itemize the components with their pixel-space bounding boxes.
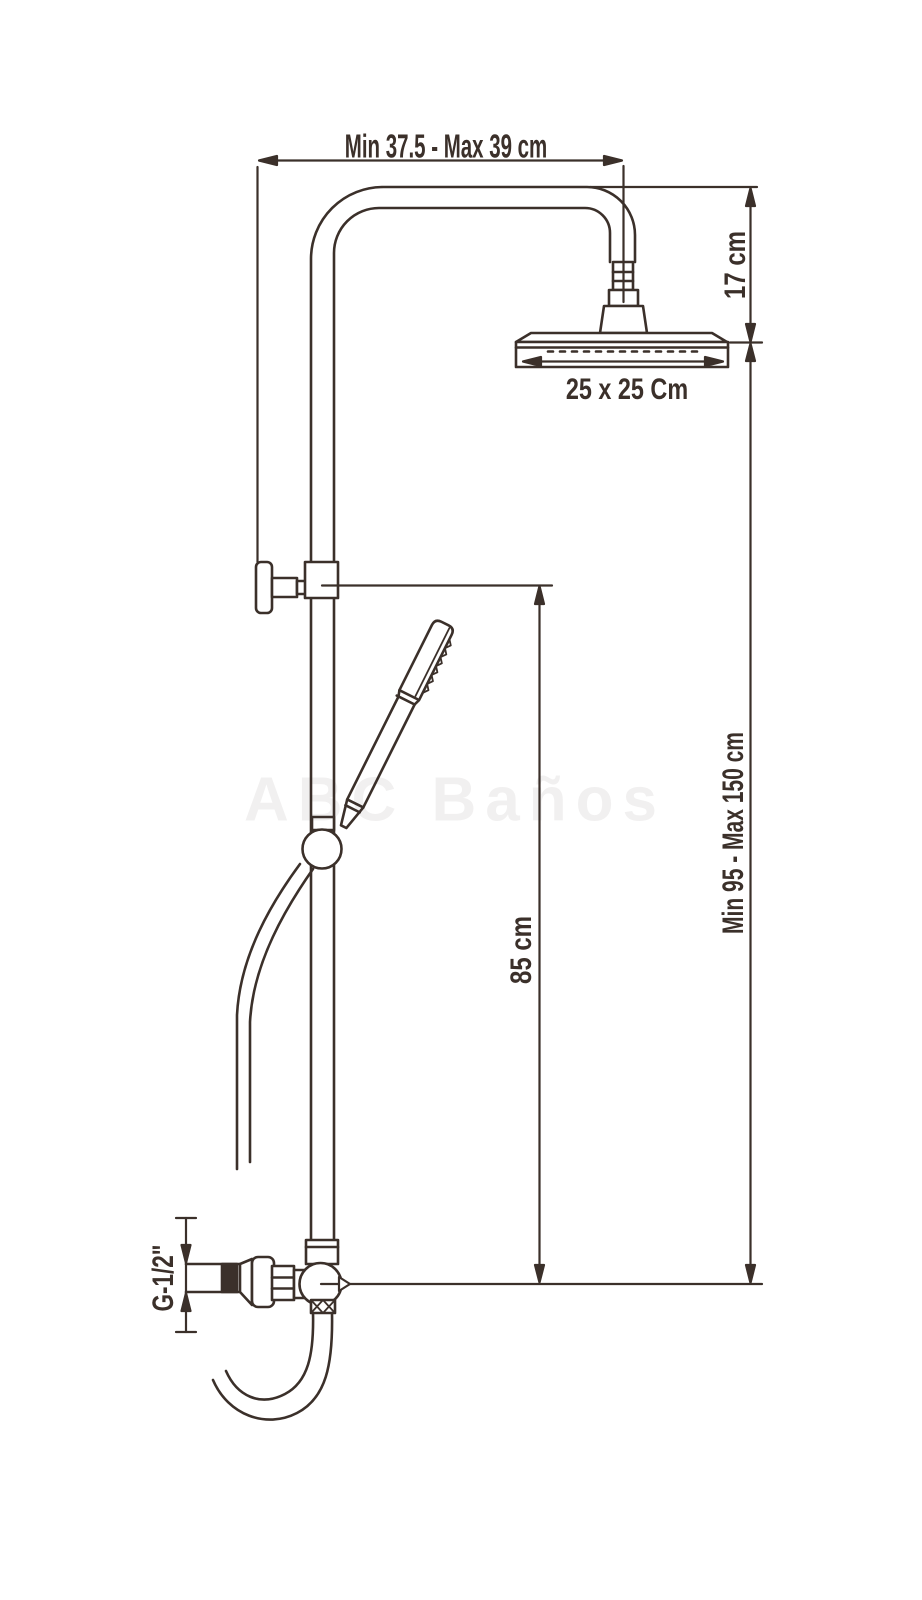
wall-bracket xyxy=(256,562,338,613)
hose-nut xyxy=(311,1300,335,1313)
watermark: ABC Baños xyxy=(244,765,666,836)
dim-label-arm-reach: Min 37.5 - Max 39 cm xyxy=(345,130,547,163)
dim-label-inlet-thread: G-1/2" xyxy=(149,1245,179,1312)
dim-label-column-height: Min 95 - Max 150 cm xyxy=(719,732,749,934)
hand-shower-hose-lower xyxy=(213,1300,335,1420)
diverter-valve xyxy=(186,1240,342,1307)
dim-label-head-size: 25 x 25 Cm xyxy=(566,375,688,405)
shower-column-diagram: Min 37.5 - Max 39 cm 17 cm 25 x 25 Cm 85… xyxy=(0,0,922,1600)
dim-label-handset-height: 85 cm xyxy=(507,916,537,984)
inlet-thread-band xyxy=(222,1264,237,1292)
hand-shower-hose-upper xyxy=(237,864,313,1169)
dim-label-head-drop: 17 cm xyxy=(721,231,751,299)
diverter-pointer xyxy=(339,1277,350,1291)
